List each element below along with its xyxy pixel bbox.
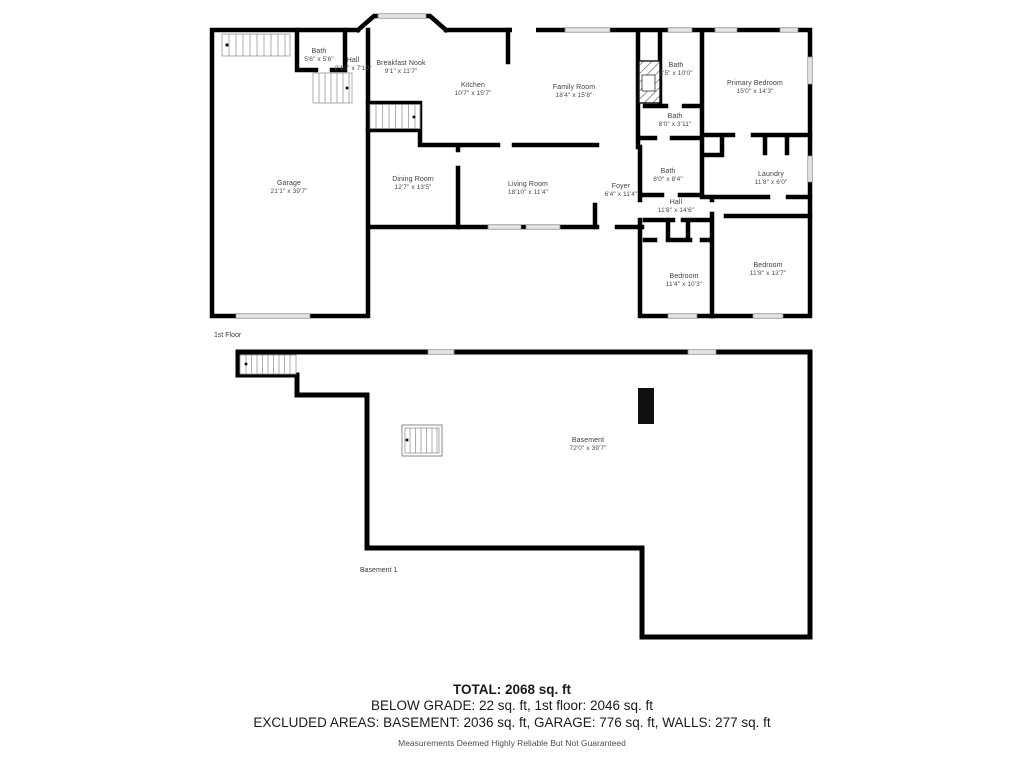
- room-label-basement: Basement 72'0" x 39'7": [570, 437, 607, 453]
- summary-disclaimer: Measurements Deemed Highly Reliable But …: [0, 738, 1024, 748]
- foyer-staircase: [370, 105, 420, 129]
- room-label-breakfast-nook: Breakfast Nook 9'1" x 11'7": [376, 60, 425, 76]
- room-label-bedroom2: Bedroom 11'8" x 13'7": [750, 262, 786, 278]
- first-floor-walls: [212, 16, 810, 316]
- summary-total: TOTAL: 2068 sq. ft: [0, 681, 1024, 698]
- basement-entry-staircase: [240, 355, 296, 374]
- room-label-bath2: Bath 3'5" x 10'0": [659, 62, 692, 78]
- area-summary: TOTAL: 2068 sq. ft BELOW GRADE: 22 sq. f…: [0, 681, 1024, 748]
- garage-staircase: [222, 34, 290, 56]
- hall-staircase: [313, 73, 352, 103]
- room-label-family-room: Family Room 18'4" x 15'8": [553, 84, 595, 100]
- room-label-foyer: Foyer 6'4" x 11'4": [605, 183, 638, 199]
- basement-caption: Basement 1: [360, 567, 397, 574]
- room-label-living-room: Living Room 18'10" x 11'4": [508, 181, 548, 197]
- basement-walls: [238, 352, 810, 637]
- basement-staircase: [402, 425, 442, 456]
- room-label-bath4: Bath 8'0" x 8'4": [653, 168, 683, 184]
- floorplan-drawing: [0, 0, 1024, 768]
- fireplace-chimney: [639, 61, 660, 103]
- room-label-dining-room: Dining Room 12'7" x 13'5": [392, 176, 434, 192]
- room-label-bedroom1: Bedroom 11'4" x 10'3": [666, 273, 702, 289]
- room-label-hall1: Hall 2'10" x 7'10": [335, 57, 372, 73]
- room-label-garage: Garage 21'1" x 39'7": [271, 180, 308, 196]
- room-label-hall2: Hall 11'8" x 14'6": [658, 199, 694, 215]
- first-floor-caption: 1st Floor: [214, 332, 241, 339]
- summary-excluded-areas: EXCLUDED AREAS: BASEMENT: 2036 sq. ft, G…: [0, 715, 1024, 732]
- summary-below-grade: BELOW GRADE: 22 sq. ft, 1st floor: 2046 …: [0, 698, 1024, 715]
- floorplan-page: Bath 5'6" x 5'6" Hall 2'10" x 7'10" Brea…: [0, 0, 1024, 768]
- room-label-bath1: Bath 5'6" x 5'6": [304, 48, 334, 64]
- room-label-laundry: Laundry 11'8" x 6'0": [755, 171, 788, 187]
- room-label-bath3: Bath 8'0" x 3'11": [659, 113, 692, 129]
- basement-chimney: [638, 388, 654, 424]
- room-label-primary-bedroom: Primary Bedroom 15'0" x 14'3": [727, 80, 783, 96]
- room-label-kitchen: Kitchen 10'7" x 15'7": [455, 82, 492, 98]
- first-floor-openings: [512, 27, 536, 34]
